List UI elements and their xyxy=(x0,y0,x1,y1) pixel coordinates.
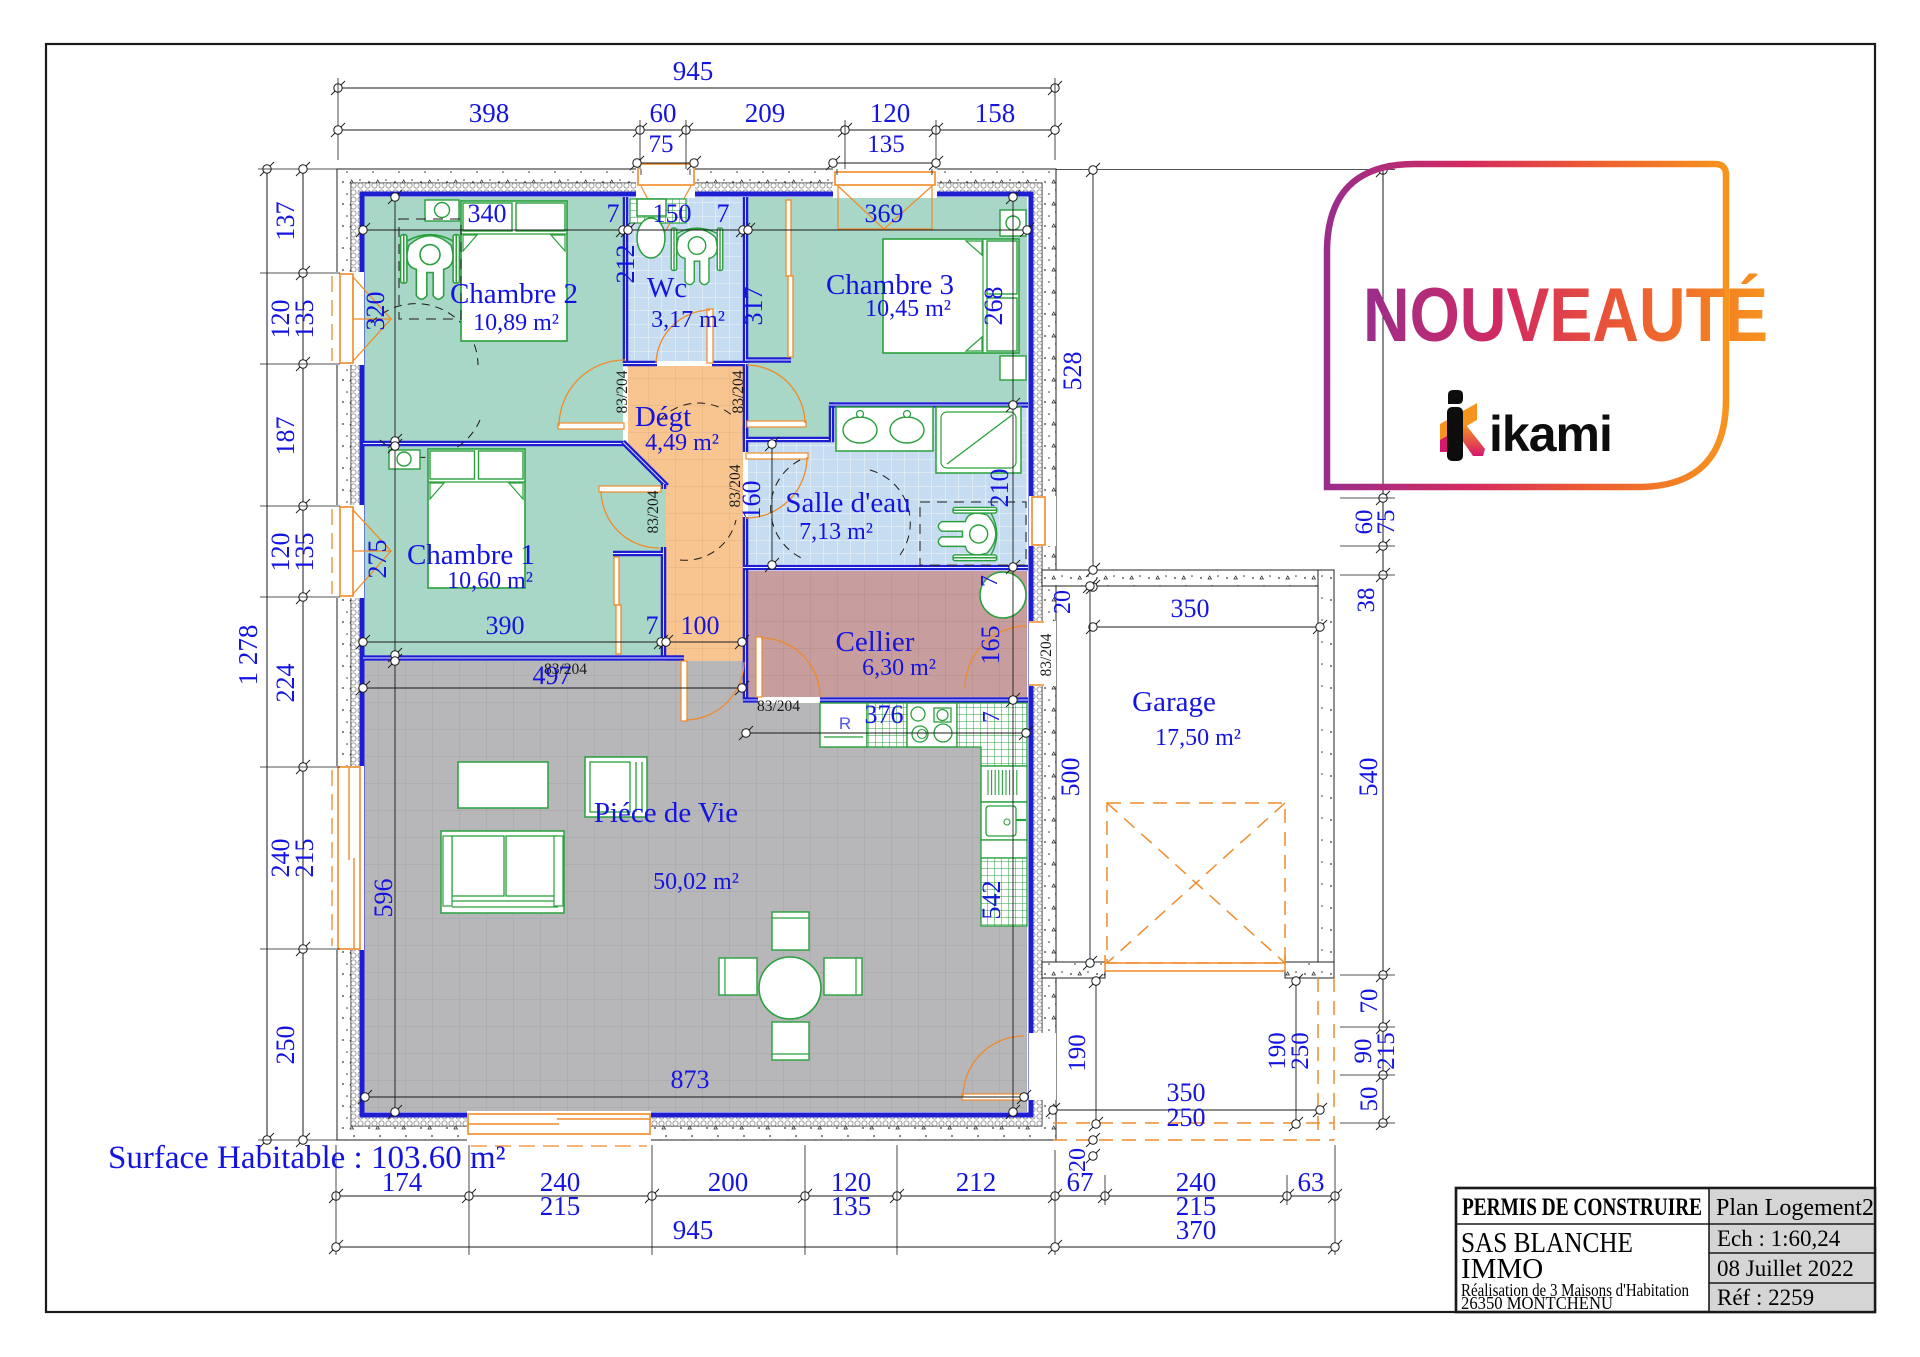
svg-text:83/204: 83/204 xyxy=(1038,633,1055,676)
svg-text:215: 215 xyxy=(290,839,319,878)
svg-text:63: 63 xyxy=(1298,1167,1325,1197)
svg-text:369: 369 xyxy=(865,199,904,228)
svg-text:224: 224 xyxy=(271,664,300,703)
svg-text:945: 945 xyxy=(673,1215,714,1245)
svg-text:320: 320 xyxy=(361,292,390,331)
svg-text:350: 350 xyxy=(1171,594,1210,623)
svg-text:3,17 m²: 3,17 m² xyxy=(651,307,725,333)
svg-text:17,50 m²: 17,50 m² xyxy=(1155,725,1241,751)
svg-text:945: 945 xyxy=(673,56,714,86)
svg-text:Chambre 2: Chambre 2 xyxy=(450,278,578,310)
svg-text:215: 215 xyxy=(1373,1032,1400,1070)
svg-text:10,60 m²: 10,60 m² xyxy=(447,568,533,594)
svg-text:26350 MONTCHENU: 26350 MONTCHENU xyxy=(1461,1293,1613,1313)
svg-text:340: 340 xyxy=(468,199,507,228)
svg-text:4,49 m²: 4,49 m² xyxy=(645,430,719,456)
svg-text:542: 542 xyxy=(977,881,1006,920)
svg-text:275: 275 xyxy=(363,540,392,579)
svg-text:158: 158 xyxy=(975,98,1016,128)
svg-text:Dégt: Dégt xyxy=(635,401,691,433)
svg-text:873: 873 xyxy=(671,1065,710,1094)
svg-text:83/204: 83/204 xyxy=(730,370,747,413)
svg-text:187: 187 xyxy=(271,417,300,456)
svg-text:209: 209 xyxy=(745,98,786,128)
svg-text:370: 370 xyxy=(1176,1215,1217,1245)
svg-text:137: 137 xyxy=(271,202,300,241)
svg-text:190: 190 xyxy=(1064,1034,1091,1072)
svg-text:135: 135 xyxy=(831,1191,872,1221)
svg-text:Surface Habitable : 103.60 m²: Surface Habitable : 103.60 m² xyxy=(108,1140,506,1176)
svg-text:200: 200 xyxy=(708,1167,749,1197)
svg-text:50,02 m²: 50,02 m² xyxy=(653,869,739,895)
svg-text:60: 60 xyxy=(650,98,677,128)
svg-text:20: 20 xyxy=(1050,590,1076,614)
svg-text:212: 212 xyxy=(611,245,640,284)
svg-text:250: 250 xyxy=(1287,1032,1314,1070)
svg-text:Réf : 2259: Réf : 2259 xyxy=(1717,1285,1814,1310)
svg-text:75: 75 xyxy=(649,131,674,158)
svg-text:210: 210 xyxy=(985,469,1014,508)
svg-text:250: 250 xyxy=(1167,1103,1206,1132)
svg-text:376: 376 xyxy=(865,700,904,729)
svg-text:7: 7 xyxy=(979,711,1005,723)
svg-text:1 278: 1 278 xyxy=(233,625,263,686)
svg-text:50: 50 xyxy=(1356,1087,1383,1112)
svg-text:20: 20 xyxy=(1065,1148,1091,1172)
svg-text:135: 135 xyxy=(290,533,319,572)
svg-text:70: 70 xyxy=(1356,989,1383,1014)
svg-text:R: R xyxy=(839,714,851,733)
svg-text:NOUVEAUTÉ: NOUVEAUTÉ xyxy=(1363,273,1768,358)
svg-text:135: 135 xyxy=(867,131,905,158)
svg-text:83/204: 83/204 xyxy=(544,661,587,678)
svg-text:Salle d'eau: Salle d'eau xyxy=(785,487,910,519)
svg-text:268: 268 xyxy=(979,287,1008,326)
svg-text:165: 165 xyxy=(976,626,1005,665)
svg-text:83/204: 83/204 xyxy=(614,370,631,413)
svg-text:135: 135 xyxy=(290,300,319,339)
svg-text:596: 596 xyxy=(369,879,398,918)
svg-text:7,13 m²: 7,13 m² xyxy=(799,519,873,545)
svg-text:PERMIS DE CONSTRUIRE: PERMIS DE CONSTRUIRE xyxy=(1462,1194,1702,1221)
svg-text:528: 528 xyxy=(1058,352,1087,391)
svg-text:317: 317 xyxy=(739,287,768,326)
svg-text:100: 100 xyxy=(681,611,720,640)
svg-text:Cellier: Cellier xyxy=(836,626,915,658)
svg-text:500: 500 xyxy=(1056,758,1085,797)
svg-text:7: 7 xyxy=(646,611,659,640)
svg-text:08 Juillet 2022: 08 Juillet 2022 xyxy=(1717,1256,1854,1281)
svg-text:10,89 m²: 10,89 m² xyxy=(473,310,559,336)
svg-text:7: 7 xyxy=(607,199,620,228)
svg-text:38: 38 xyxy=(1353,588,1380,613)
svg-text:10,45 m²: 10,45 m² xyxy=(865,296,951,322)
svg-text:Plan Logement2: Plan Logement2 xyxy=(1716,1195,1874,1221)
svg-text:7: 7 xyxy=(717,199,730,228)
svg-text:83/204: 83/204 xyxy=(727,464,744,507)
svg-text:398: 398 xyxy=(469,98,510,128)
svg-text:250: 250 xyxy=(271,1026,300,1065)
svg-text:390: 390 xyxy=(486,611,525,640)
svg-text:75: 75 xyxy=(1373,510,1400,535)
svg-text:83/204: 83/204 xyxy=(757,698,800,715)
svg-text:Ech : 1:60,24: Ech : 1:60,24 xyxy=(1717,1226,1841,1251)
svg-text:83/204: 83/204 xyxy=(645,490,662,533)
svg-text:7: 7 xyxy=(977,575,1003,587)
svg-text:Piéce de Vie: Piéce de Vie xyxy=(594,797,738,829)
svg-text:Chambre 1: Chambre 1 xyxy=(407,539,535,571)
svg-text:ikami: ikami xyxy=(1489,406,1612,462)
svg-text:540: 540 xyxy=(1354,758,1383,797)
svg-text:120: 120 xyxy=(870,98,911,128)
svg-text:212: 212 xyxy=(956,1167,997,1197)
svg-text:Wc: Wc xyxy=(647,272,687,304)
svg-text:6,30 m²: 6,30 m² xyxy=(862,655,936,681)
svg-text:150: 150 xyxy=(653,199,692,228)
svg-text:Garage: Garage xyxy=(1132,686,1216,718)
svg-text:215: 215 xyxy=(540,1191,581,1221)
